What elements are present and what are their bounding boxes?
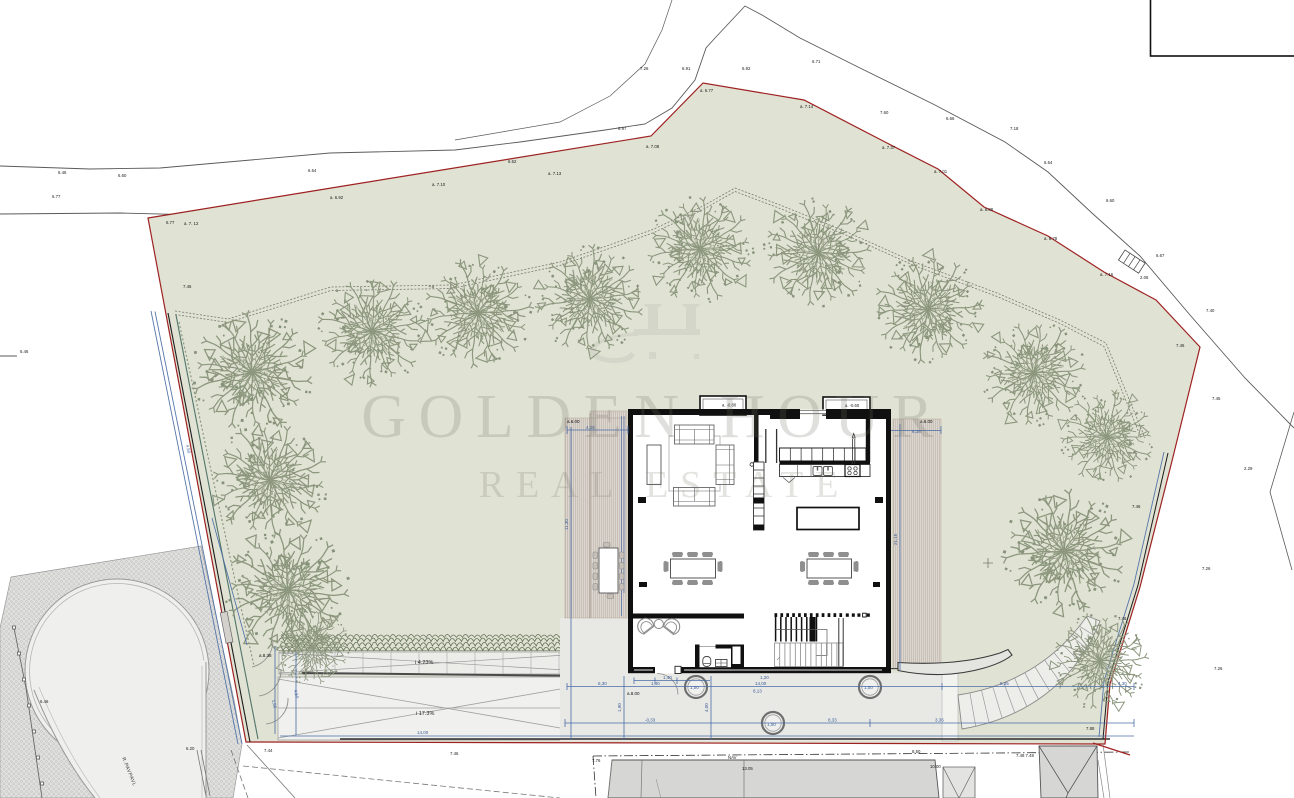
svg-text:7.18: 7.18	[1010, 126, 1019, 131]
svg-text:7.60: 7.60	[880, 110, 889, 115]
svg-text:1,40: 1,40	[651, 681, 660, 686]
svg-text:6.91: 6.91	[682, 66, 691, 71]
svg-text:a. 6.77: a. 6.77	[700, 88, 714, 93]
svg-text:a. 7.13: a. 7.13	[548, 171, 562, 176]
svg-text:a. 7. 12: a. 7. 12	[184, 221, 199, 226]
svg-text:1,00: 1,00	[690, 685, 699, 690]
svg-text:13.05: 13.05	[742, 766, 753, 771]
svg-text:14,00: 14,00	[755, 681, 767, 686]
svg-text:7.46: 7.46	[1176, 343, 1185, 348]
svg-text:6.20: 6.20	[186, 746, 195, 751]
svg-text:6.60: 6.60	[118, 173, 127, 178]
svg-text:4,00: 4,00	[704, 703, 709, 712]
svg-text:i 17.3%: i 17.3%	[416, 711, 434, 717]
svg-text:6.62: 6.62	[508, 159, 517, 164]
svg-text:8,13: 8,13	[753, 689, 762, 694]
svg-text:10.00: 10.00	[930, 764, 941, 769]
svg-text:3,36: 3,36	[935, 718, 944, 723]
svg-text:7.26: 7.26	[640, 66, 649, 71]
svg-text:2.29: 2.29	[1244, 466, 1253, 471]
svg-text:7.88: 7.88	[1086, 726, 1095, 731]
svg-text:1,20: 1,20	[760, 675, 769, 680]
svg-text:7.26: 7.26	[1202, 566, 1211, 571]
svg-text:8.50: 8.50	[912, 749, 921, 754]
svg-text:7.46: 7.46	[1132, 504, 1141, 509]
svg-text:a. 6.78: a. 6.78	[1044, 236, 1058, 241]
svg-text:7.76: 7.76	[592, 758, 601, 763]
svg-text:7.46: 7.46	[1118, 616, 1127, 621]
svg-text:21,15: 21,15	[893, 533, 898, 545]
svg-text:7.26: 7.26	[1214, 666, 1223, 671]
svg-text:6.60: 6.60	[1106, 198, 1115, 203]
svg-text:4,30: 4,30	[1118, 681, 1127, 686]
svg-text:6.67: 6.67	[1156, 253, 1165, 258]
svg-text:6.46: 6.46	[20, 349, 29, 354]
svg-text:NAV: NAV	[728, 755, 737, 760]
svg-text:6.66: 6.66	[946, 116, 955, 121]
svg-text:5,35: 5,35	[1000, 681, 1009, 686]
svg-text:6,30: 6,30	[598, 681, 607, 686]
svg-text:a. 7.14: a. 7.14	[800, 104, 814, 109]
svg-text:i 4.23%: i 4.23%	[415, 660, 433, 666]
svg-text:1,00: 1,00	[767, 722, 776, 727]
svg-text:a. 7.10: a. 7.10	[432, 182, 446, 187]
svg-text:a.8.38: a.8.38	[259, 653, 272, 658]
svg-text:GOLDEN HOUR: GOLDEN HOUR	[361, 383, 946, 451]
svg-text:8,33: 8,33	[828, 718, 837, 723]
svg-text:6.46: 6.46	[40, 699, 49, 704]
svg-text:1,40: 1,40	[663, 675, 672, 680]
svg-text:6.77: 6.77	[166, 220, 175, 225]
svg-text:a. 7.08: a. 7.08	[646, 144, 660, 149]
svg-text:1,00: 1,00	[864, 685, 873, 690]
svg-text:7.44: 7.44	[264, 748, 273, 753]
svg-text:6.71: 6.71	[812, 59, 821, 64]
svg-text:a. 6.88: a. 6.88	[980, 207, 994, 212]
svg-text:-0,33: -0,33	[645, 718, 656, 723]
svg-text:6.64: 6.64	[308, 168, 317, 173]
svg-text:14,00: 14,00	[417, 730, 429, 735]
svg-text:7.45: 7.45	[1212, 396, 1221, 401]
svg-text:2.06: 2.06	[1140, 275, 1149, 280]
svg-text:a. 6.92: a. 6.92	[330, 195, 344, 200]
svg-text:7.46: 7.46	[450, 751, 459, 756]
svg-text:1,90: 1,90	[617, 703, 622, 712]
svg-text:6.97: 6.97	[618, 126, 627, 131]
svg-text:6.92: 6.92	[742, 66, 751, 71]
svg-text:11,30: 11,30	[564, 519, 569, 530]
svg-text:a.8.00: a.8.00	[627, 691, 640, 696]
svg-text:6.46: 6.46	[58, 170, 67, 175]
svg-text:REAL ESTATE: REAL ESTATE	[479, 464, 850, 506]
svg-text:a. 7.16: a. 7.16	[1100, 272, 1114, 277]
svg-text:a. 7.01: a. 7.01	[934, 169, 948, 174]
svg-text:6.64: 6.64	[1044, 160, 1053, 165]
svg-text:7.46: 7.46	[183, 284, 192, 289]
svg-text:7.40: 7.40	[1206, 308, 1215, 313]
svg-text:6.77: 6.77	[52, 194, 61, 199]
svg-text:7.48 7.48: 7.48 7.48	[1016, 753, 1035, 758]
svg-text:a. 7.37: a. 7.37	[882, 145, 896, 150]
